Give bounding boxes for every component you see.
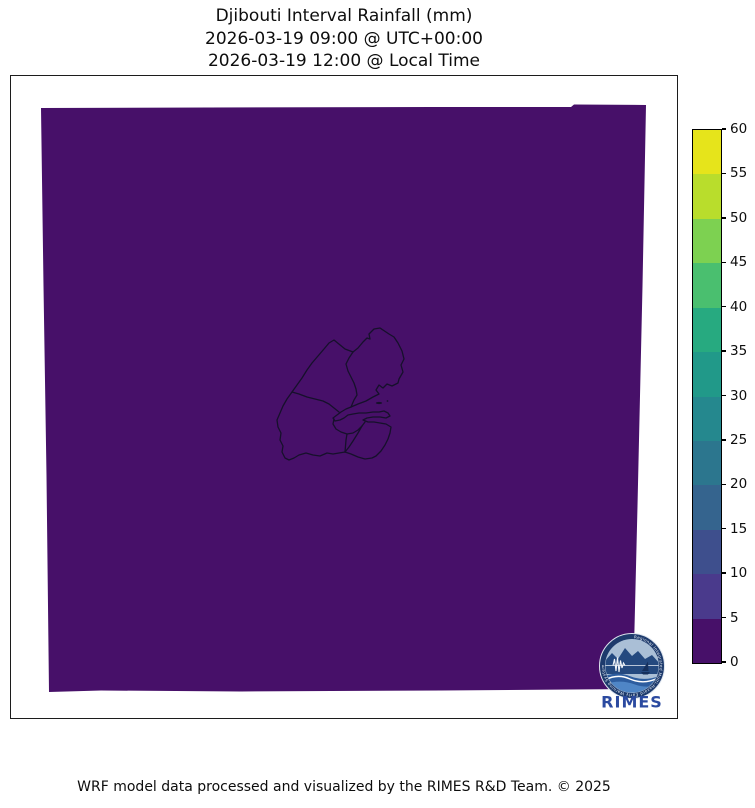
colorbar-segment: [693, 308, 721, 352]
moucha-island: [376, 402, 382, 404]
maskali-islet: [387, 400, 389, 402]
map-axes-frame: [10, 75, 678, 719]
colorbar-tickmark: [722, 395, 726, 396]
colorbar-tick-label: 50: [730, 209, 747, 227]
colorbar-segment: [693, 352, 721, 396]
colorbar-segment: [693, 530, 721, 574]
colorbar-tickmark: [722, 217, 726, 218]
colorbar: [692, 129, 722, 664]
colorbar-segment: [693, 219, 721, 263]
rainfall-map: [11, 76, 676, 717]
colorbar-tickmark: [722, 572, 726, 573]
colorbar-tick-label: 10: [730, 564, 747, 582]
colorbar-tick-label: 60: [730, 120, 747, 138]
colorbar-tickmark: [722, 128, 726, 129]
title-block: Djibouti Interval Rainfall (mm) 2026-03-…: [10, 5, 678, 73]
colorbar-segment: [693, 441, 721, 485]
colorbar-tickmark: [722, 661, 726, 662]
colorbar-tickmark: [722, 528, 726, 529]
colorbar-tick-label: 20: [730, 475, 747, 493]
colorbar-tickmark: [722, 350, 726, 351]
colorbar-segment: [693, 619, 721, 663]
colorbar-tick-label: 0: [730, 653, 739, 671]
colorbar-tickmark: [722, 484, 726, 485]
colorbar-tick-label: 5: [730, 609, 739, 627]
colorbar-tickmark: [722, 439, 726, 440]
colorbar-tick-label: 40: [730, 298, 747, 316]
colorbar-segment: [693, 263, 721, 307]
colorbar-tickmark: [722, 262, 726, 263]
colorbar-tick-label: 35: [730, 342, 747, 360]
colorbar-tick-label: 45: [730, 253, 747, 271]
figure: Djibouti Interval Rainfall (mm) 2026-03-…: [0, 0, 755, 808]
logo-wordmark: RIMES: [601, 693, 663, 712]
colorbar-segment: [693, 174, 721, 218]
plot-subtitle-utc: 2026-03-19 09:00 @ UTC+00:00: [10, 28, 678, 51]
colorbar-tick-label: 15: [730, 520, 747, 538]
rimes-logo: Regional Integrated Multi-Hazard Early W…: [597, 632, 667, 712]
colorbar-segment: [693, 485, 721, 529]
colorbar-tickmark: [722, 173, 726, 174]
colorbar-tick-label: 30: [730, 387, 747, 405]
plot-title: Djibouti Interval Rainfall (mm): [10, 5, 678, 28]
footer-credit: WRF model data processed and visualized …: [10, 779, 678, 795]
rainfall-field: [41, 105, 646, 693]
colorbar-tickmark: [722, 306, 726, 307]
colorbar-segment: [693, 130, 721, 174]
colorbar-tick-label: 25: [730, 431, 747, 449]
colorbar-ticks: 605550454035302520151050: [722, 129, 755, 662]
colorbar-tickmark: [722, 617, 726, 618]
colorbar-segment: [693, 574, 721, 618]
plot-subtitle-local: 2026-03-19 12:00 @ Local Time: [10, 50, 678, 73]
colorbar-tick-label: 55: [730, 164, 747, 182]
colorbar-segment: [693, 397, 721, 441]
